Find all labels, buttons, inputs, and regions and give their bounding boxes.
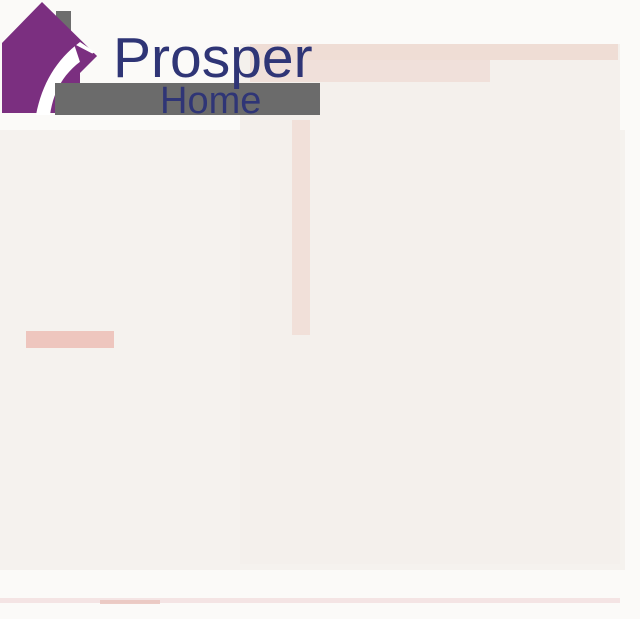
svg-text:Home: Home — [160, 80, 261, 122]
